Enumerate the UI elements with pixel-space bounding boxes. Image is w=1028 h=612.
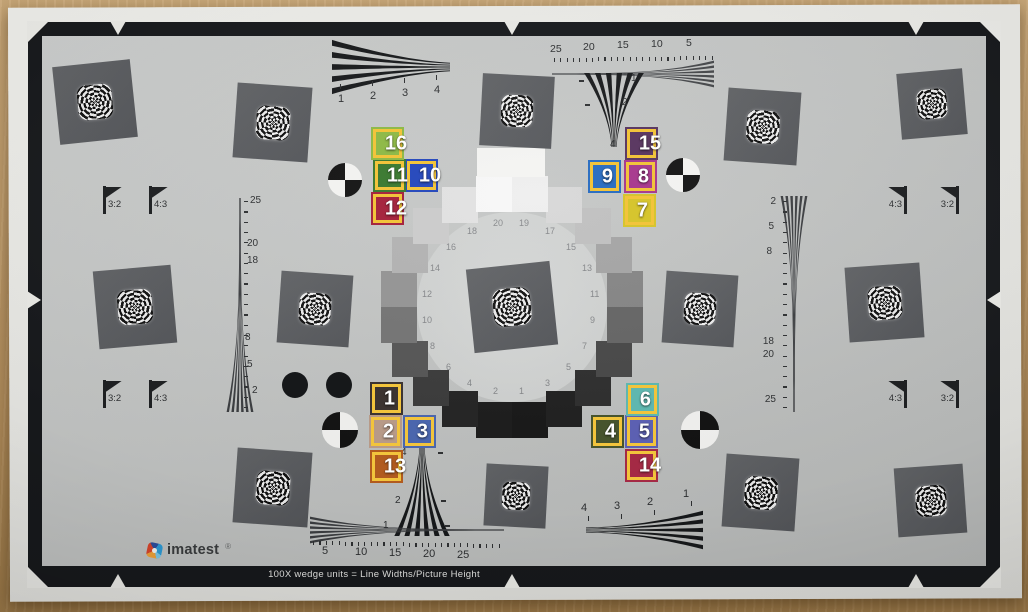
wedge-scale-label: 10	[651, 39, 663, 50]
tick-mark	[438, 452, 443, 454]
tick-mark	[409, 543, 410, 547]
tick-mark	[244, 314, 248, 315]
tick-mark	[436, 75, 437, 80]
wedge-scale-label: 8	[245, 333, 251, 343]
tick-mark	[588, 516, 589, 521]
tick-mark	[598, 57, 599, 61]
flag-triangle-icon	[888, 187, 904, 198]
aspect-ratio-label: 3:2	[941, 199, 954, 210]
flag-triangle-icon	[940, 381, 956, 392]
zone-plate-pattern	[744, 108, 779, 143]
tick-mark	[686, 56, 687, 60]
zone-plate-pattern	[742, 474, 777, 509]
tick-mark	[372, 81, 373, 86]
tick-mark	[783, 283, 787, 284]
tick-mark	[611, 57, 612, 61]
annotation-number: 13	[384, 456, 406, 476]
zone-plate-pattern	[254, 104, 290, 140]
annotation-marker-13[interactable]: 13	[370, 450, 403, 483]
siemens-star-square	[893, 463, 967, 537]
wedge-scale-label: 5	[754, 222, 774, 232]
tick-mark	[244, 376, 248, 377]
tick-mark	[783, 222, 787, 223]
tick-mark	[332, 541, 333, 545]
oecf-patch	[596, 341, 632, 377]
annotation-number: 2	[383, 421, 394, 441]
annotation-number: 1	[384, 388, 395, 408]
tick-mark	[454, 543, 455, 547]
tick-mark	[428, 543, 429, 547]
tick-mark	[244, 201, 248, 202]
tick-mark	[473, 544, 474, 548]
wedge-scale-label: 2	[395, 496, 401, 506]
oecf-patch	[381, 271, 417, 307]
aspect-flag: 3:2	[103, 380, 149, 412]
imatest-brand-text: imatest	[167, 542, 219, 558]
wedge-scale-label: 15	[617, 40, 629, 51]
annotation-number: 11	[387, 165, 408, 185]
tick-mark	[371, 542, 372, 546]
zone-plate-pattern	[254, 469, 290, 505]
oecf-patch-number: 2	[493, 387, 498, 396]
wedge-scale-label: 15	[389, 548, 401, 559]
siemens-star-square	[52, 59, 138, 145]
wedge-scale-label: 25	[550, 44, 562, 55]
imatest-logo: imatest ®	[147, 540, 231, 560]
tick-mark	[244, 222, 248, 223]
tick-mark	[244, 345, 248, 346]
tick-mark	[244, 386, 248, 387]
oecf-patch-number: 11	[590, 290, 599, 299]
tick-mark	[783, 345, 787, 346]
tick-mark	[415, 543, 416, 547]
tick-mark	[244, 253, 248, 254]
zone-plate-pattern	[76, 83, 114, 121]
oecf-patch	[546, 187, 582, 223]
wedge-scale-label: 5	[322, 546, 328, 557]
annotation-number: 3	[417, 421, 428, 441]
flag-triangle-icon	[152, 187, 168, 198]
zone-plate-pattern	[501, 481, 530, 510]
footer-caption: 100X wedge units = Line Widths/Picture H…	[262, 569, 486, 580]
tick-mark	[396, 542, 397, 546]
oecf-patch-number: 13	[582, 264, 592, 273]
oecf-patch	[381, 307, 417, 343]
aspect-flag: 4:3	[861, 380, 907, 412]
oecf-patch-number: 3	[545, 379, 550, 388]
annotation-marker-3[interactable]: 3	[403, 415, 436, 448]
tick-mark	[492, 544, 493, 548]
siemens-star-square	[662, 271, 739, 348]
tick-mark	[403, 542, 404, 546]
tick-mark	[783, 335, 787, 336]
siemens-star-square	[232, 82, 312, 162]
wedge-scale-label: 18	[754, 337, 774, 347]
tick-mark	[661, 57, 662, 61]
wedge-bottom-right	[586, 512, 703, 548]
tick-mark	[351, 542, 352, 546]
tick-mark	[244, 273, 248, 274]
wedge-scale-label: 2	[647, 497, 653, 508]
tick-mark	[573, 58, 574, 62]
wedge-scale-label: 25	[457, 550, 469, 561]
tick-mark	[654, 510, 655, 515]
oecf-patch-number: 9	[590, 316, 595, 325]
tick-mark	[244, 304, 248, 305]
tick-mark	[244, 211, 248, 212]
siemens-star-square	[93, 265, 178, 350]
focus-dot	[326, 372, 352, 398]
flag-pole	[904, 380, 907, 408]
tick-mark	[783, 356, 787, 357]
tick-mark	[244, 283, 248, 284]
oecf-patch	[476, 176, 512, 212]
flag-triangle-icon	[106, 187, 122, 198]
chart-stage: 1234567891011121314151617181920123425201…	[0, 0, 1028, 612]
tick-mark	[445, 525, 450, 527]
tick-mark	[585, 104, 590, 106]
tick-mark	[649, 57, 650, 61]
tick-mark	[499, 544, 500, 548]
tick-mark	[244, 397, 248, 398]
tick-mark	[617, 57, 618, 61]
aspect-ratio-label: 3:2	[108, 199, 121, 210]
annotation-number: 6	[640, 389, 651, 409]
tick-mark	[441, 543, 442, 547]
tick-mark	[313, 541, 314, 545]
annotation-marker-14[interactable]: 14	[625, 449, 658, 482]
tick-mark	[783, 253, 787, 254]
tick-mark	[783, 294, 787, 295]
tick-mark	[674, 57, 675, 61]
tick-mark	[422, 543, 423, 547]
tick-mark	[630, 57, 631, 61]
aspect-ratio-label: 4:3	[889, 199, 902, 210]
siemens-star-square	[723, 87, 801, 165]
annotation-number: 8	[638, 166, 649, 186]
wedge-scale-label: 2	[756, 197, 776, 207]
tick-mark	[783, 407, 787, 408]
oecf-patch-number: 16	[446, 243, 456, 252]
flag-pole	[149, 186, 152, 214]
siemens-star-square	[479, 73, 555, 149]
tick-mark	[655, 57, 656, 61]
oecf-patch-number: 8	[430, 342, 435, 351]
tick-mark	[460, 543, 461, 547]
tick-mark	[560, 58, 561, 62]
wedge-scale-label: 5	[686, 38, 692, 49]
zone-plate-pattern	[298, 292, 332, 326]
wedge-scale-label: 25	[250, 196, 261, 206]
aspect-flag: 3:2	[913, 186, 959, 218]
oecf-patch	[476, 402, 512, 438]
wedge-scale-label: 25	[756, 395, 776, 405]
flag-triangle-icon	[940, 187, 956, 198]
siemens-star-square	[844, 262, 924, 342]
tick-mark	[390, 542, 391, 546]
tick-mark	[567, 58, 568, 62]
tick-mark	[693, 56, 694, 60]
wedge-scale-label: 4	[581, 503, 587, 514]
tick-mark	[783, 242, 787, 243]
zone-plate-pattern	[916, 88, 949, 121]
oecf-patch	[607, 271, 643, 307]
wedge-scale-label: 3	[402, 88, 408, 99]
wedge-top-left	[332, 42, 450, 92]
tick-mark	[642, 57, 643, 61]
tick-mark	[783, 273, 787, 274]
flag-triangle-icon	[152, 381, 168, 392]
wedge-scale-label: 20	[423, 549, 435, 560]
zone-plate-pattern	[116, 288, 154, 326]
oecf-patch-number: 12	[422, 290, 432, 299]
tick-mark	[579, 58, 580, 62]
wedge-scale-label: 18	[247, 256, 258, 266]
tick-mark	[783, 325, 787, 326]
wedge-scale-label: 1	[338, 94, 344, 105]
annotation-marker-10[interactable]: 10	[405, 159, 438, 192]
aspect-flag: 3:2	[913, 380, 959, 412]
zone-plate-pattern	[683, 292, 717, 326]
zone-plate-pattern	[913, 483, 946, 516]
siemens-star-square	[896, 68, 968, 140]
oecf-patch	[512, 402, 548, 438]
aspect-flag: 3:2	[103, 186, 149, 218]
aspect-ratio-label: 3:2	[941, 393, 954, 404]
annotation-number: 7	[637, 200, 648, 220]
flag-pole	[103, 380, 106, 408]
siemens-star-square	[466, 261, 558, 353]
registration-quadrant-circle	[328, 163, 362, 197]
wedge-scale-label: 1	[383, 521, 389, 531]
annotation-marker-9[interactable]: 9	[588, 160, 621, 193]
annotation-number: 16	[385, 133, 407, 153]
tick-mark	[441, 500, 446, 502]
tick-mark	[783, 376, 787, 377]
annotation-marker-2[interactable]: 2	[369, 415, 402, 448]
oecf-patch	[607, 307, 643, 343]
tick-mark	[783, 304, 787, 305]
tick-mark	[783, 232, 787, 233]
oecf-patch-number: 7	[582, 342, 587, 351]
tick-mark	[783, 397, 787, 398]
tick-mark	[244, 407, 248, 408]
oecf-patch	[512, 176, 548, 212]
wedge-scale-label: 1	[683, 489, 689, 500]
tick-mark	[699, 56, 700, 60]
aspect-ratio-label: 4:3	[889, 393, 902, 404]
tick-mark	[783, 263, 787, 264]
wedge-scale-label: 8	[752, 247, 772, 257]
siemens-star-square	[721, 453, 799, 531]
imatest-pinwheel-icon	[146, 541, 164, 559]
annotation-marker-5[interactable]: 5	[625, 415, 658, 448]
registration-quadrant-circle	[322, 412, 358, 448]
tick-mark	[319, 541, 320, 545]
tick-mark	[244, 232, 248, 233]
tick-mark	[345, 542, 346, 546]
tick-mark	[592, 58, 593, 62]
tick-mark	[579, 80, 584, 82]
annotation-marker-12[interactable]: 12	[371, 192, 404, 225]
wedge-scale-label: 20	[754, 350, 774, 360]
annotation-number: 12	[385, 198, 407, 218]
wedge-left-vertical-fine	[227, 198, 253, 412]
annotated-test-chart-photo: 1234567891011121314151617181920123425201…	[0, 0, 1028, 612]
wedge-scale-label: 20	[247, 239, 258, 249]
white-reference-patch	[477, 148, 545, 177]
wedge-scale-label: 3	[614, 501, 620, 512]
registered-trademark-symbol: ®	[225, 542, 231, 551]
tick-mark	[783, 201, 787, 202]
wedge-scale-label: 2	[252, 386, 258, 396]
wedge-scale-label: 10	[355, 547, 367, 558]
wedge-scale-label: 4	[610, 140, 616, 150]
tick-mark	[244, 356, 248, 357]
siemens-star-square	[277, 271, 354, 348]
annotation-marker-8[interactable]: 8	[624, 160, 657, 193]
annotation-number: 9	[602, 166, 613, 186]
annotation-number: 10	[419, 165, 441, 185]
tick-mark	[404, 78, 405, 83]
oecf-patch	[442, 187, 478, 223]
tick-mark	[621, 514, 622, 519]
wedge-scale-label: 20	[583, 42, 595, 53]
oecf-patch-number: 10	[422, 316, 432, 325]
flag-pole	[904, 186, 907, 214]
tick-mark	[340, 84, 341, 89]
tick-mark	[783, 386, 787, 387]
flag-pole	[149, 380, 152, 408]
tick-mark	[339, 541, 340, 545]
wedge-scale-label: 2	[622, 98, 628, 108]
tick-mark	[705, 56, 706, 60]
annotation-number: 15	[639, 133, 661, 153]
tick-mark	[244, 325, 248, 326]
annotation-marker-1[interactable]: 1	[370, 382, 403, 415]
annotation-marker-4[interactable]: 4	[591, 415, 624, 448]
annotation-number: 14	[639, 455, 661, 475]
zone-plate-pattern	[866, 284, 902, 320]
tick-mark	[383, 542, 384, 546]
registration-quadrant-circle	[666, 158, 700, 192]
oecf-patch-number: 14	[430, 264, 440, 273]
tick-mark	[783, 211, 787, 212]
tick-mark	[479, 544, 480, 548]
annotation-marker-6[interactable]: 6	[626, 383, 659, 416]
wedge-scale-label: 4	[434, 85, 440, 96]
aspect-flag: 4:3	[149, 380, 195, 412]
annotation-marker-16[interactable]: 16	[371, 127, 404, 160]
oecf-patch-number: 4	[467, 379, 472, 388]
tick-mark	[586, 58, 587, 62]
tick-mark	[680, 56, 681, 60]
tick-mark	[244, 294, 248, 295]
flag-pole	[103, 186, 106, 214]
wedge-scale-label: 5	[247, 360, 253, 370]
oecf-patch-number: 17	[545, 227, 555, 236]
flag-triangle-icon	[888, 381, 904, 392]
annotation-marker-15[interactable]: 15	[625, 127, 658, 160]
tick-mark	[377, 542, 378, 546]
oecf-patch-number: 20	[493, 219, 503, 228]
wedge-scale-label: 1	[631, 74, 637, 84]
annotation-marker-11[interactable]: 11	[373, 159, 406, 192]
zone-plate-pattern	[500, 94, 534, 128]
oecf-patch	[392, 341, 428, 377]
annotation-marker-7[interactable]: 7	[623, 194, 656, 227]
tick-mark	[554, 58, 555, 62]
annotation-number: 4	[605, 421, 616, 441]
oecf-patch-number: 1	[519, 387, 524, 396]
aspect-ratio-label: 4:3	[154, 393, 167, 404]
oecf-patch-number: 18	[467, 227, 477, 236]
tick-mark	[447, 543, 448, 547]
registration-quadrant-circle	[681, 411, 719, 449]
flag-pole	[956, 186, 959, 214]
tick-mark	[467, 543, 468, 547]
tick-mark	[783, 314, 787, 315]
oecf-patch-number: 6	[446, 363, 451, 372]
oecf-patch-number: 5	[566, 363, 571, 372]
oecf-patch-number: 15	[566, 243, 576, 252]
zone-plate-pattern	[491, 286, 533, 328]
tick-mark	[667, 57, 668, 61]
tick-mark	[604, 57, 605, 61]
aspect-flag: 4:3	[149, 186, 195, 218]
aspect-ratio-label: 3:2	[108, 393, 121, 404]
annotation-number: 5	[639, 421, 650, 441]
tick-mark	[486, 544, 487, 548]
siemens-star-square	[232, 447, 312, 527]
aspect-flag: 4:3	[861, 186, 907, 218]
wedge-scale-label: 2	[370, 91, 376, 102]
flag-pole	[956, 380, 959, 408]
tick-mark	[783, 366, 787, 367]
oecf-patch-number: 19	[519, 219, 529, 228]
tick-mark	[691, 501, 692, 506]
tick-mark	[435, 543, 436, 547]
tick-mark	[636, 57, 637, 61]
flag-triangle-icon	[106, 381, 122, 392]
focus-dot	[282, 372, 308, 398]
tick-mark	[712, 56, 713, 60]
tick-mark	[623, 57, 624, 61]
wedge-bottom-left-fine	[310, 517, 504, 543]
aspect-ratio-label: 4:3	[154, 199, 167, 210]
